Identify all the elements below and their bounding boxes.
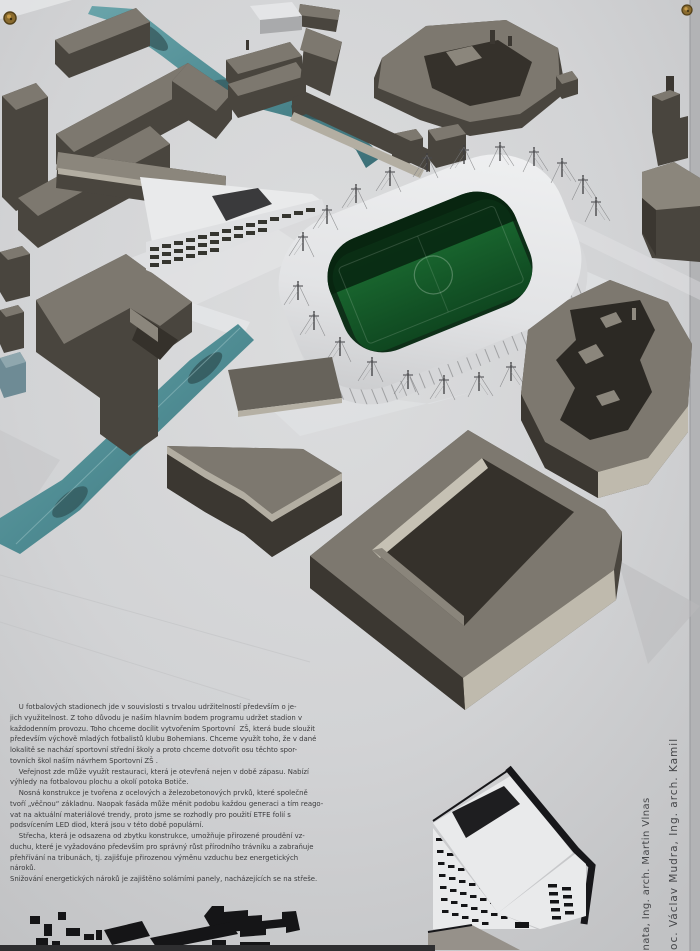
credits-line-2: rátil, doc. Václav Mudra, Ing. arch. Kam… [668,738,680,951]
poster-photo: U fotbalových stadionech jde v souvislos… [0,0,700,951]
description-text-block: U fotbalových stadionech jde v souvislos… [10,702,362,885]
credits-line-1: anata, Ing. arch. Martin Vlnas [641,797,652,951]
description-paragraph: Střecha, která je odsazena od zbytku kon… [10,831,362,874]
push-pin-top-right [682,5,692,15]
description-paragraph: Snižování energetických nároků je zajišt… [10,874,362,885]
description-paragraph: Nosná konstrukce je tvořena z ocelových … [10,788,362,831]
push-pin-top-left [4,12,16,24]
bottom-print-edge [0,945,435,951]
poster-right-edge [690,0,700,951]
description-paragraph: Veřejnost zde může využít restauraci, kt… [10,767,362,789]
description-paragraph: U fotbalových stadionech jde v souvislos… [10,702,362,767]
